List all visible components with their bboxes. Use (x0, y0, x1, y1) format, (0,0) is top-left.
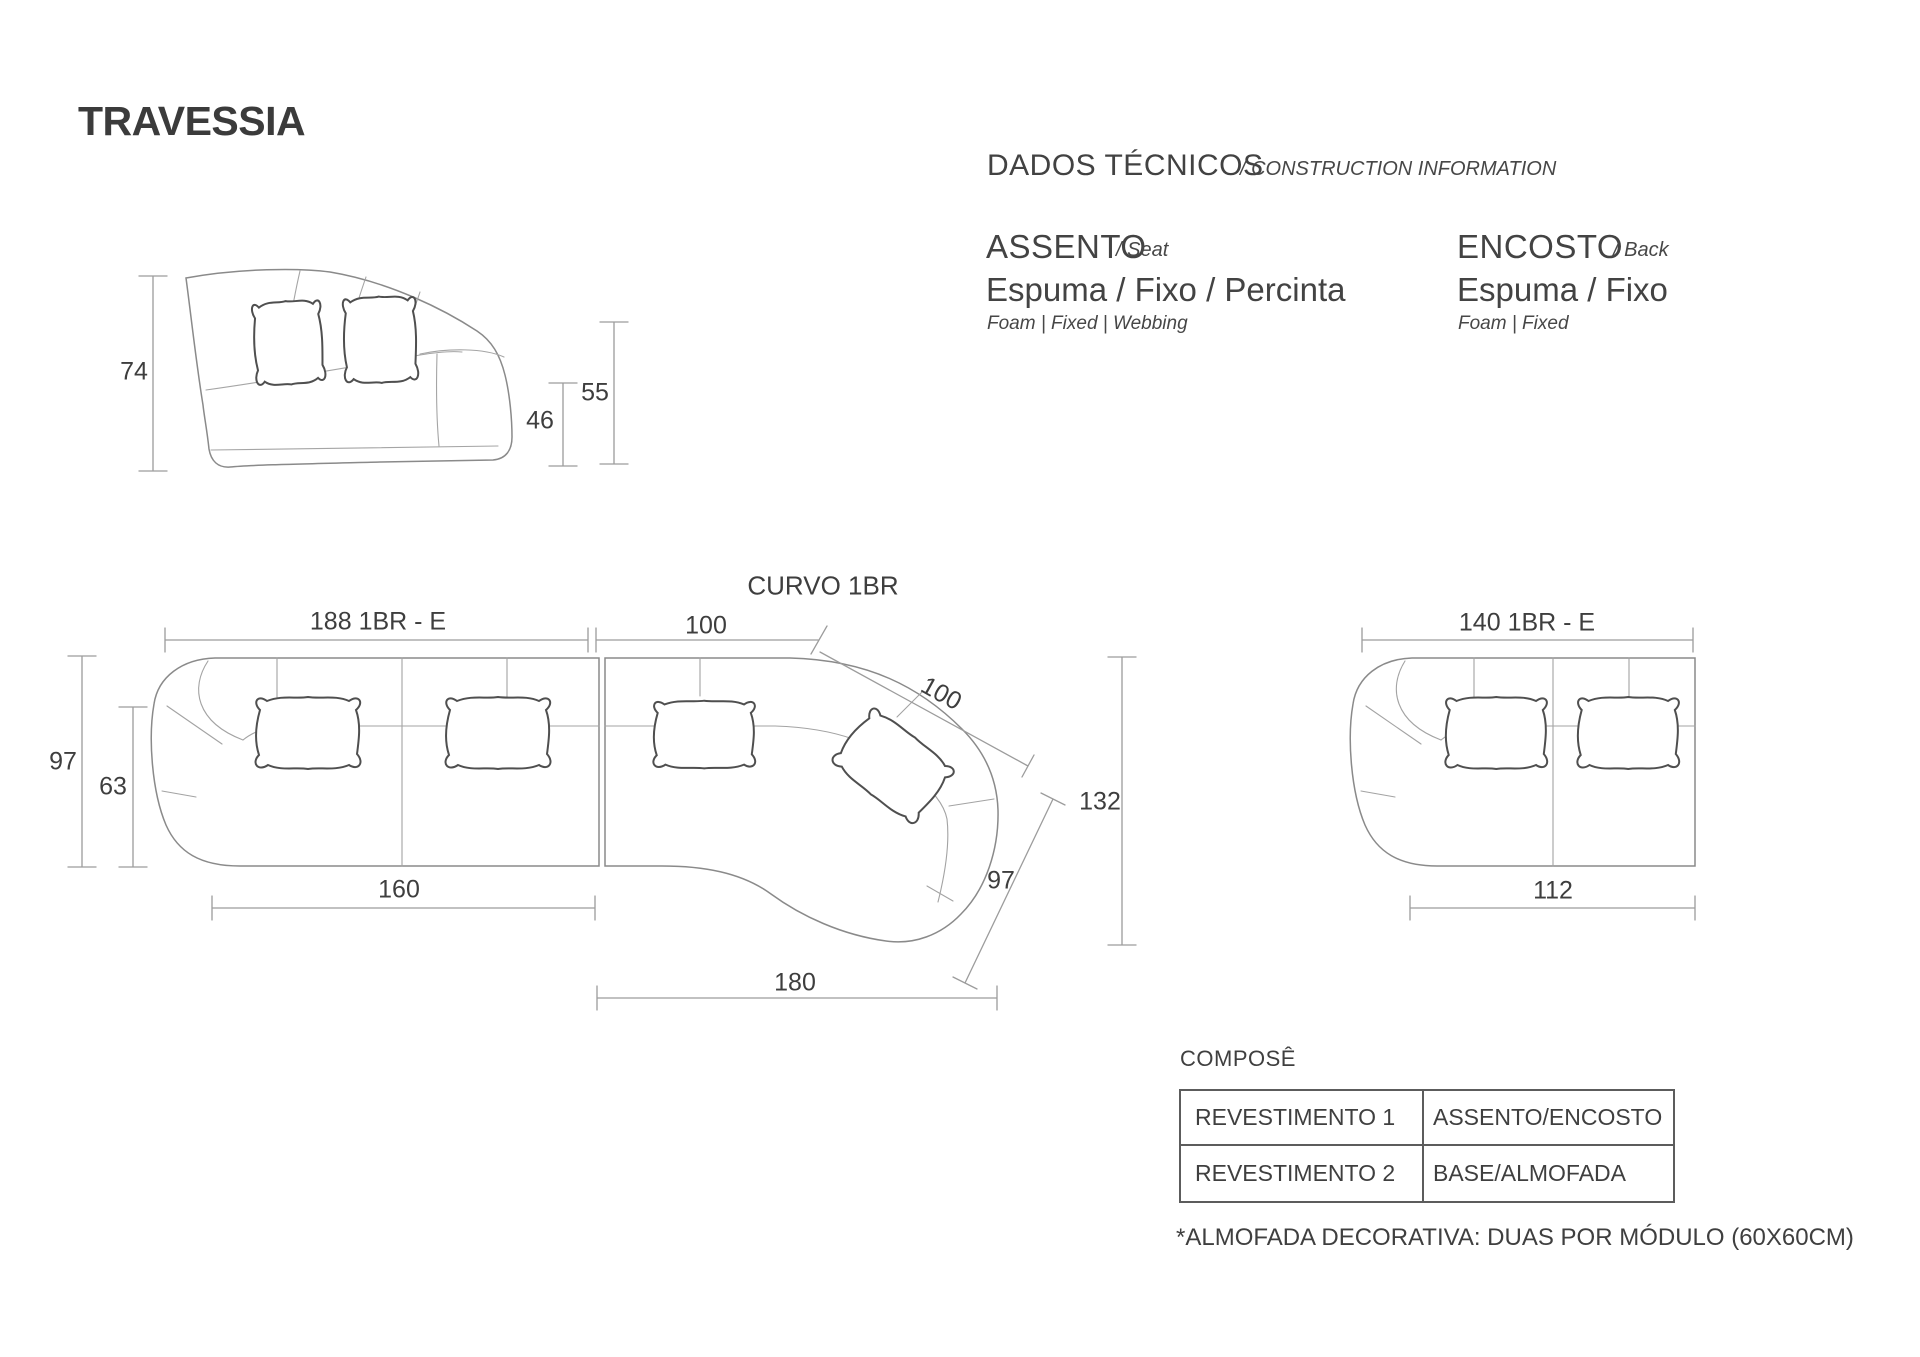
back-materials-translation: Foam | Fixed (1458, 313, 1569, 335)
dim-label-curvo-top-width: 100 (685, 612, 727, 641)
compose-table: REVESTIMENTO 1 ASSENTO/ENCOSTO REVESTIME… (1179, 1089, 1675, 1203)
side-view-pillows (251, 295, 418, 387)
back-materials: Espuma / Fixo (1457, 271, 1668, 309)
pillow (1577, 697, 1679, 769)
dim-label-arm-height: 55 (581, 379, 609, 408)
pillow (653, 701, 755, 769)
pillow (256, 697, 361, 769)
dim-label-curvo-bottom-width: 180 (774, 969, 816, 998)
page-title: TRAVESSIA (78, 98, 305, 145)
tech-info-heading: DADOS TÉCNICOS (987, 149, 1264, 183)
dim-label-module-140-seat-width: 112 (1533, 877, 1573, 906)
plan-module-140 (1350, 658, 1695, 866)
seat-label-translation: / Seat (1116, 239, 1168, 262)
side-view-sofa (186, 270, 512, 468)
dim-label-module-140-width: 140 1BR - E (1459, 609, 1595, 638)
module-140-pillows (1445, 697, 1679, 769)
pillow (251, 299, 326, 387)
technical-sheet-page: TRAVESSIA DADOS TÉCNICOS / CONSTRUCTION … (0, 0, 1920, 1357)
dim-label-module-188-depth: 97 (49, 748, 77, 777)
module-188-pillows (256, 697, 551, 769)
back-label-translation: / Back (1613, 239, 1669, 262)
tech-info-heading-translation: / CONSTRUCTION INFORMATION (1240, 158, 1556, 181)
dim-label-total-height: 74 (120, 358, 148, 387)
dim-label-curvo-side-depth: 97 (987, 867, 1015, 896)
compose-row1-material: REVESTIMENTO 1 (1181, 1091, 1424, 1146)
dim-label-curvo-total-depth: 132 (1079, 788, 1121, 817)
decorative-pillow-footnote: *ALMOFADA DECORATIVA: DUAS POR MÓDULO (6… (1176, 1224, 1854, 1252)
dim-label-module-188-width: 188 1BR - E (310, 608, 446, 637)
seat-materials: Espuma / Fixo / Percinta (986, 271, 1345, 309)
module-curvo-title: CURVO 1BR (747, 571, 898, 602)
seat-materials-translation: Foam | Fixed | Webbing (987, 313, 1188, 335)
plan-module-188 (151, 658, 599, 866)
compose-row2-application: BASE/ALMOFADA (1424, 1146, 1673, 1201)
module-curvo-pillows (653, 701, 956, 827)
compose-row1-application: ASSENTO/ENCOSTO (1424, 1091, 1673, 1146)
dim-label-seat-height: 46 (526, 407, 554, 436)
pillow (829, 705, 956, 826)
pillow (342, 295, 418, 384)
compose-table-heading: COMPOSÊ (1180, 1046, 1296, 1072)
compose-row2-material: REVESTIMENTO 2 (1181, 1146, 1424, 1201)
pillow (446, 697, 551, 769)
dimension-lines (68, 276, 1695, 1010)
dim-label-module-188-inner-depth: 63 (99, 773, 127, 802)
pillow (1445, 697, 1547, 769)
dim-label-module-188-seat-width: 160 (378, 876, 420, 905)
back-label: ENCOSTO (1457, 228, 1623, 266)
